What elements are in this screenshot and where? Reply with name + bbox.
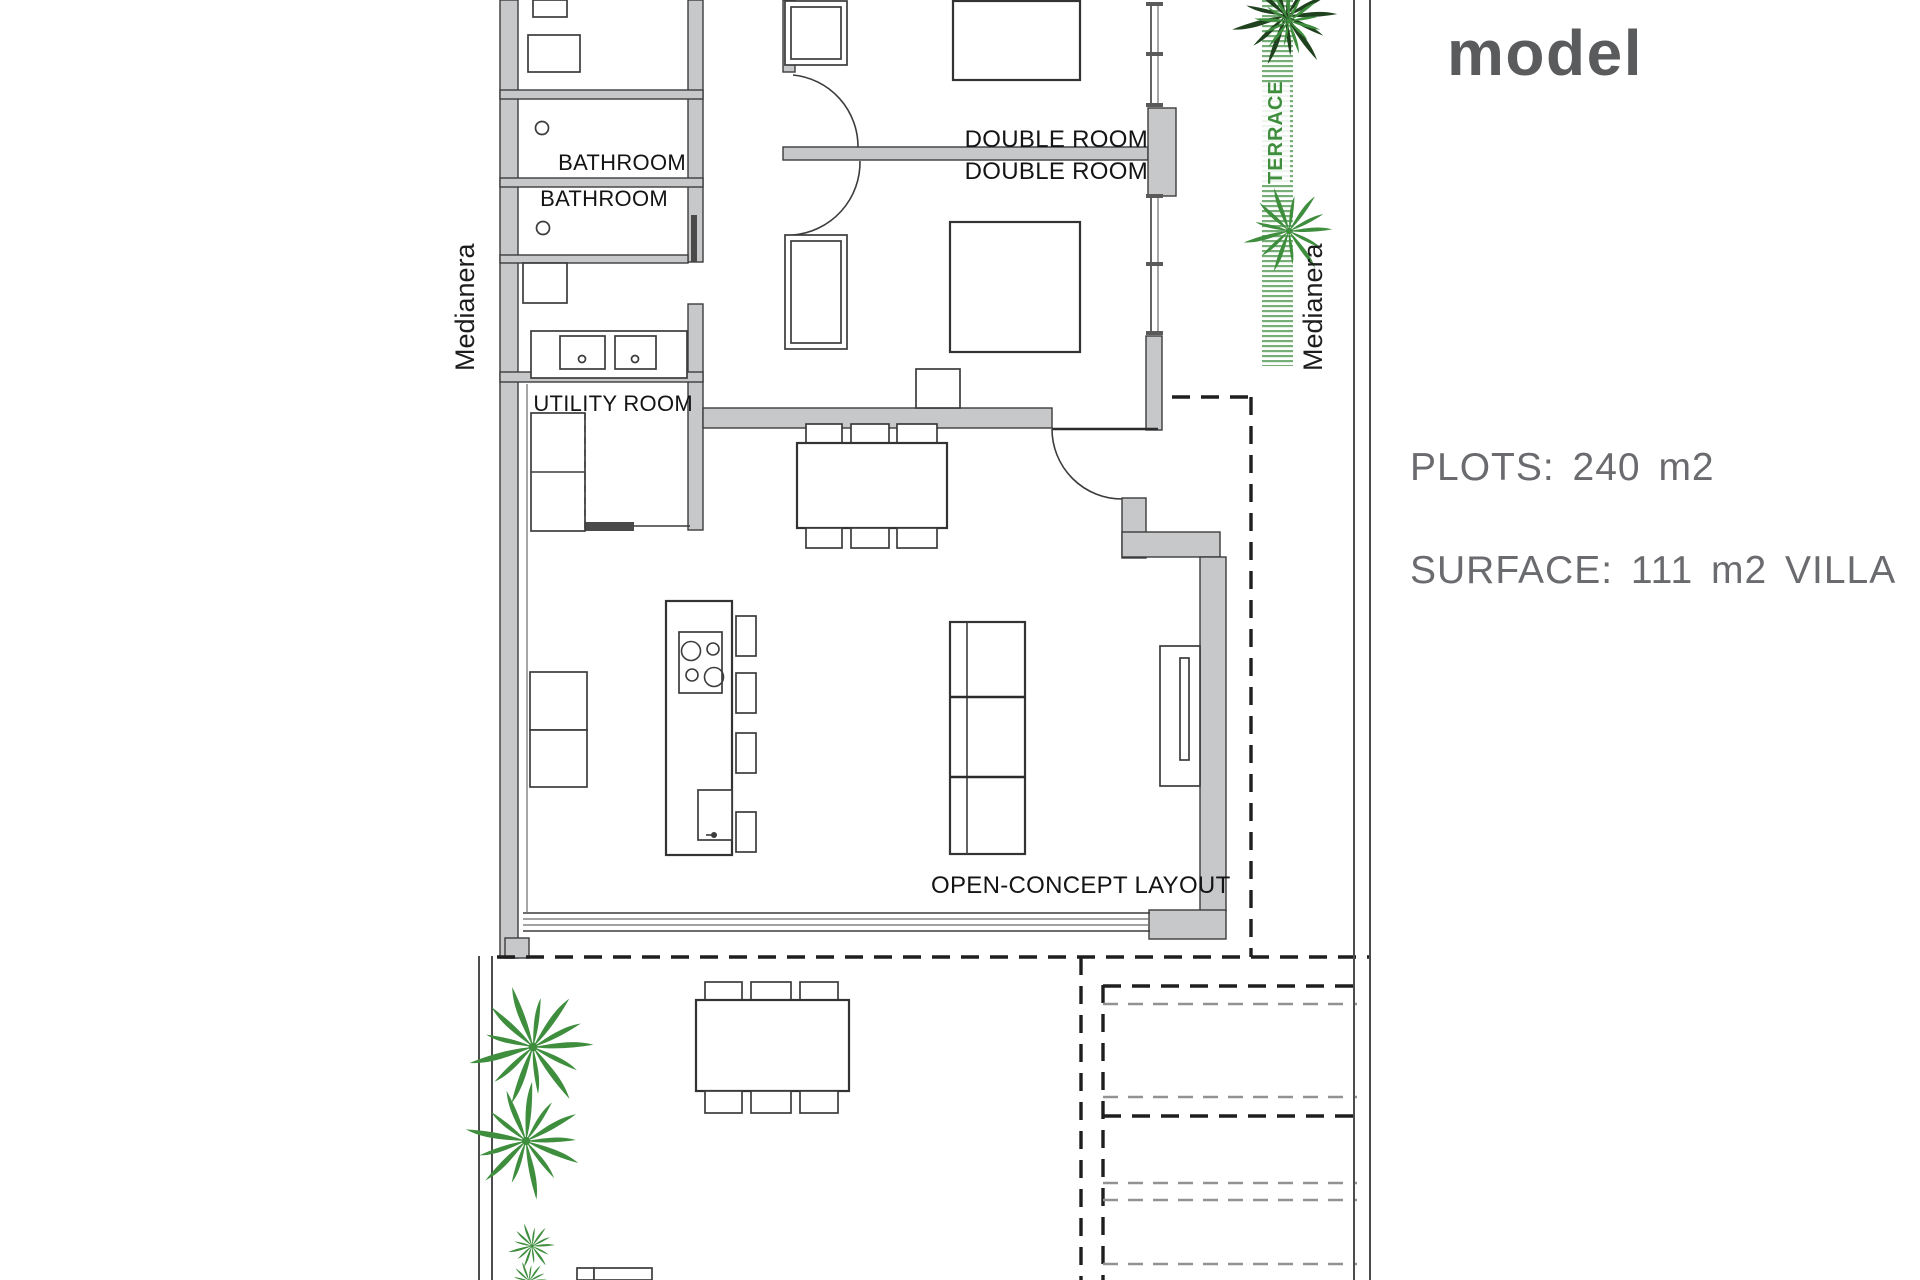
- terrace-label: TERRACE: [1262, 84, 1290, 184]
- hob-icon: [679, 632, 722, 693]
- bedside-table: [916, 369, 960, 408]
- floor-plan-page: BATHROOM BATHROOM UTILITY ROOM DOUBLE RO…: [0, 0, 1920, 1280]
- planter: [594, 1268, 652, 1280]
- room-label-utility-room: UTILITY ROOM: [493, 391, 693, 417]
- room-label-bathroom-1: BATHROOM: [486, 150, 686, 176]
- palm-tree-icon: [508, 1261, 548, 1280]
- surface-info: SURFACE: 111 m2 VILLA: [1410, 549, 1896, 593]
- bar-stools: [736, 616, 756, 852]
- planter: [577, 1268, 594, 1280]
- wardrobe: [785, 235, 847, 349]
- dining-table: [797, 424, 947, 548]
- bathroom-door-leaf: [691, 215, 697, 262]
- page-title-line1: Ground floor: [1447, 0, 1856, 12]
- entrance-door-arc: [1052, 429, 1122, 499]
- outdoor-dining-table: [696, 982, 849, 1113]
- palm-tree-icon: [508, 1223, 555, 1268]
- tv-icon: [1180, 658, 1189, 760]
- plots-info: PLOTS: 240 m2: [1410, 446, 1715, 490]
- tv-unit: [1160, 646, 1200, 786]
- kitchen-island: [666, 601, 732, 855]
- toilet-icon: [537, 222, 550, 235]
- medianera-left-label: Medianera: [448, 238, 482, 376]
- page-title-line2: model: [1447, 18, 1643, 88]
- parking-stripes: [1103, 986, 1357, 1264]
- sofa: [950, 622, 1025, 854]
- toilet-icon: [536, 122, 549, 135]
- room-label-bathroom-2: BATHROOM: [468, 186, 668, 212]
- bed: [950, 222, 1080, 352]
- medianera-right-label: Medianera: [1296, 238, 1330, 376]
- floor-plan-drawing: [0, 0, 1920, 1280]
- bed: [953, 1, 1080, 80]
- palm-tree-icon: [449, 1064, 602, 1214]
- room-label-double-room-2: DOUBLE ROOM: [940, 158, 1148, 186]
- washer: [523, 263, 567, 303]
- room-label-open-concept: OPEN-CONCEPT LAYOUT: [931, 872, 1231, 900]
- utility-sinks: [531, 331, 687, 378]
- wardrobe: [785, 1, 847, 65]
- room-label-double-room-1: DOUBLE ROOM: [940, 126, 1148, 154]
